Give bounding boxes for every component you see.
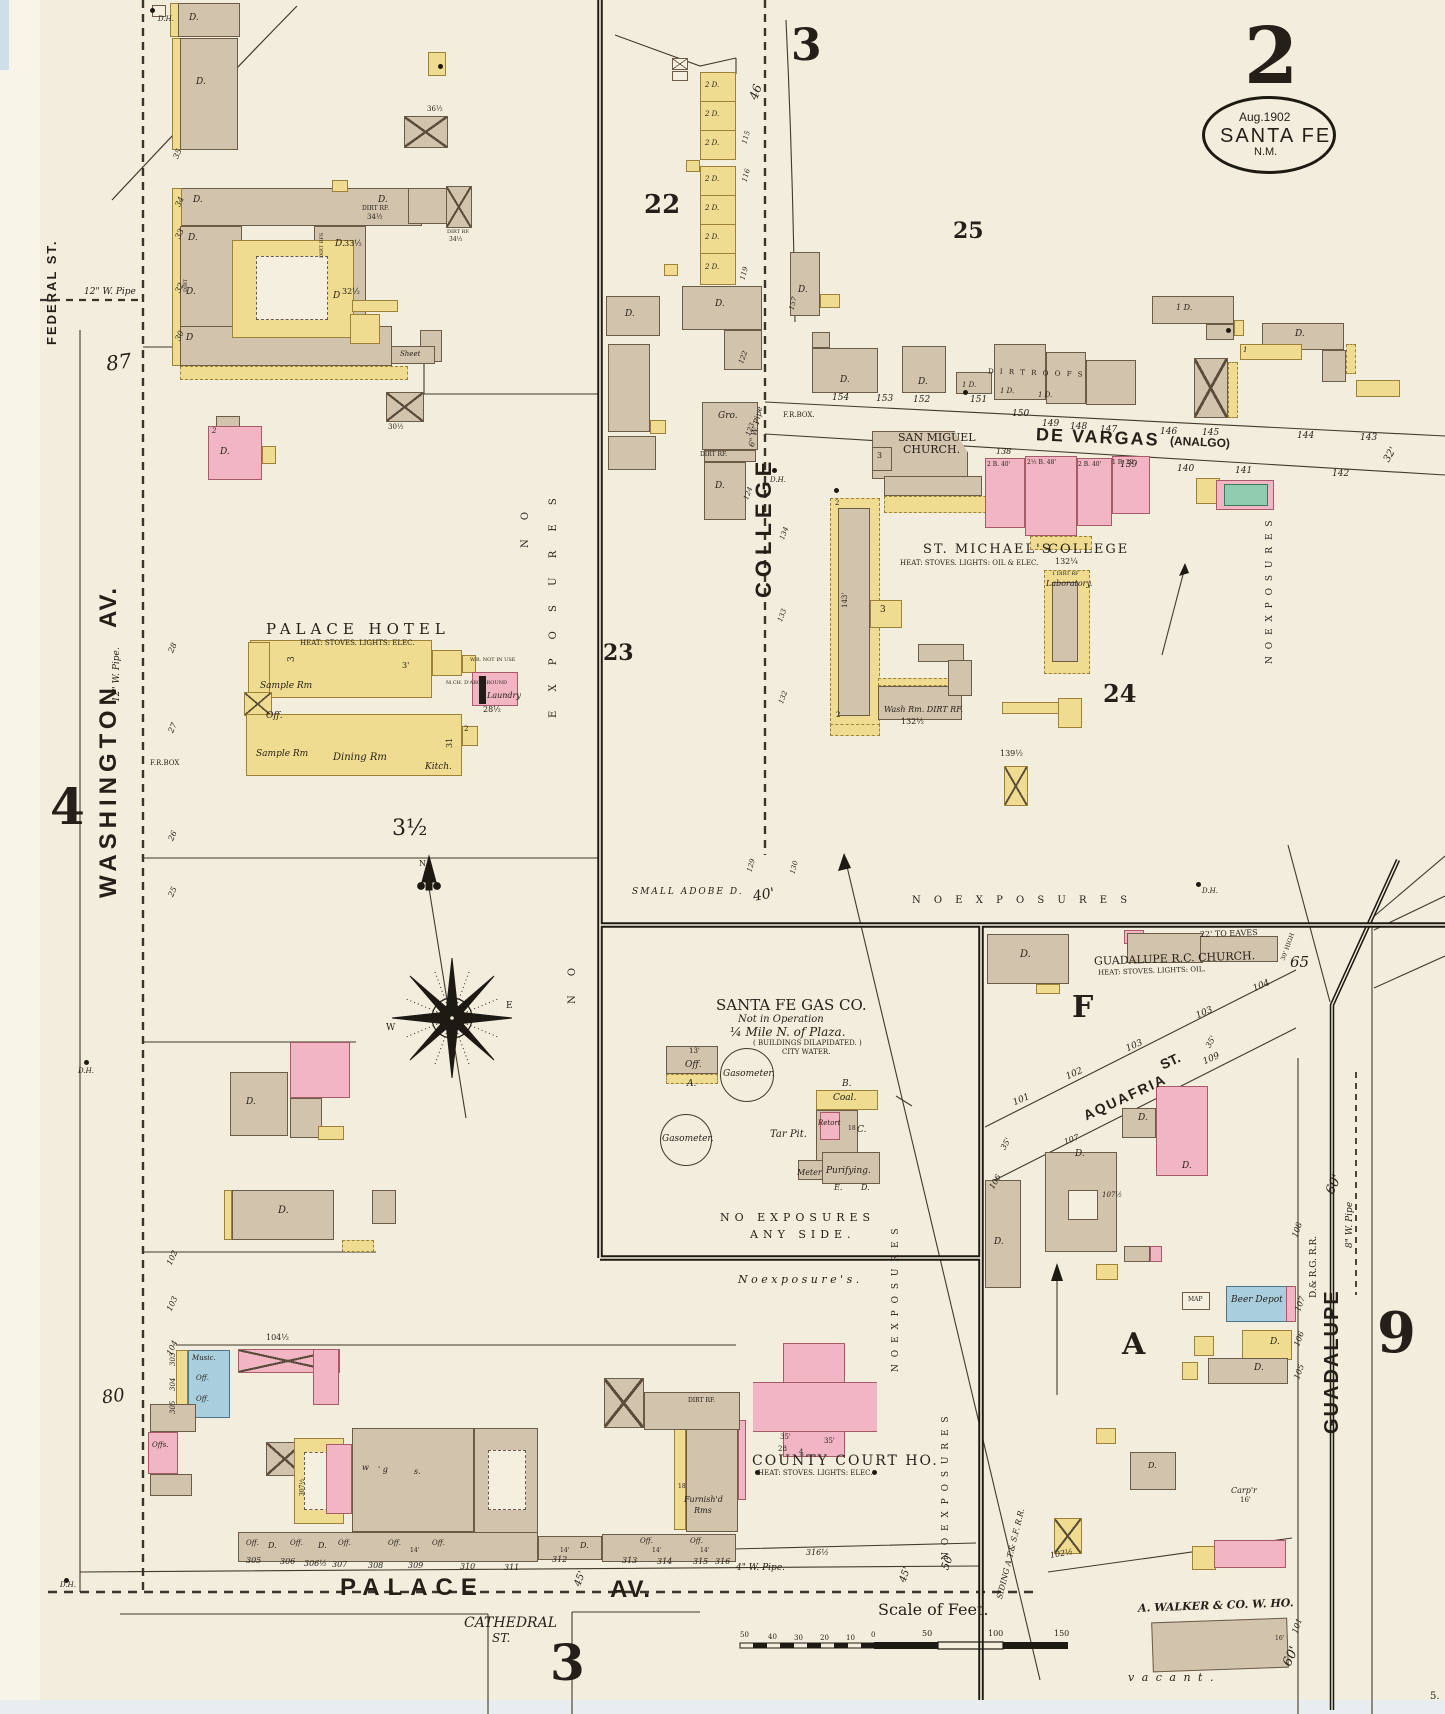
lot-number: 311 <box>504 1564 519 1572</box>
dimension: 35' <box>780 1434 791 1441</box>
scale-tick: 50 <box>740 1632 749 1639</box>
lot-number: 139 <box>1120 461 1137 470</box>
note-label: N O <box>521 504 531 548</box>
dwelling-label: D. <box>196 78 206 87</box>
room-label: Off. <box>196 1375 209 1382</box>
dwelling-label: 2 D. <box>705 176 719 183</box>
unit-label: 2½ B. 48' <box>1027 460 1056 466</box>
lot-number: 145 <box>1202 429 1219 438</box>
dimension: 143' <box>842 593 849 608</box>
dwelling-label: 1 D. <box>962 382 976 389</box>
building <box>1242 1330 1292 1360</box>
dimension: 14' <box>700 1548 709 1554</box>
building <box>672 71 688 81</box>
building <box>1356 380 1400 397</box>
room-label: Wash Rm. DIRT RF. <box>884 706 963 714</box>
post-dot <box>1226 328 1231 333</box>
lot-number: 151 <box>970 396 987 405</box>
railroad-label: D.& R.G. R.R. <box>1310 1236 1319 1298</box>
dwelling-label: D. <box>1075 1150 1085 1159</box>
building <box>150 1474 192 1496</box>
room-label: Dining Rm <box>333 753 387 763</box>
dimension: 16' <box>1240 1497 1251 1504</box>
dimension: 28 <box>778 1446 787 1453</box>
pipe-label: 8" W. Pipe <box>1346 1202 1355 1248</box>
dwelling-label: 1 D. <box>1038 392 1052 399</box>
dwelling-label: D. <box>840 376 850 385</box>
hydrant-label: D.H. <box>78 1068 94 1075</box>
roof-note: DIRT RF. <box>700 452 727 458</box>
block-number: 65 <box>1290 955 1309 970</box>
building <box>432 650 462 676</box>
building <box>180 38 238 150</box>
roof-note: DIRT RF. <box>688 1398 715 1404</box>
building <box>985 1180 1021 1288</box>
lot-number: 305 <box>246 1557 261 1565</box>
dimension: 30½ <box>388 424 404 431</box>
gasometer-label: Gasometer. <box>723 1070 775 1079</box>
building <box>650 420 666 434</box>
building <box>1194 1336 1214 1356</box>
store-label: Gro. <box>718 412 738 421</box>
scale-tick: 0 <box>871 1632 875 1639</box>
room-label: s. <box>414 1468 421 1476</box>
room-label: Off. <box>290 1540 303 1547</box>
room-label: Kitch. <box>425 763 452 772</box>
block-number: 22 <box>644 192 680 218</box>
building <box>313 1349 339 1405</box>
building <box>230 1072 288 1136</box>
street-label-palace-av: AV. <box>610 1578 652 1602</box>
adjacent-sheet-number: 3 <box>550 1638 585 1688</box>
dimension: 34½ <box>449 237 462 243</box>
lot-number: 140 <box>1177 465 1194 474</box>
dimension: 3 <box>880 606 886 615</box>
dimension: 34½ <box>367 214 383 221</box>
note-label: 1 DIRT RF <box>1052 572 1079 577</box>
building <box>386 392 424 422</box>
dwelling-label: D. <box>186 288 196 297</box>
post-dot <box>963 390 968 395</box>
dimension: 14' <box>560 1548 569 1554</box>
building <box>820 294 840 308</box>
dwelling-label: 2 D. <box>705 264 719 271</box>
lot-number: 142 <box>1332 470 1349 479</box>
lot-number: 307½ <box>300 1479 306 1496</box>
dwelling-label: D. <box>715 482 725 491</box>
dimension: 40' <box>752 886 776 904</box>
street-label-palace: PALACE <box>340 1576 485 1600</box>
firebox-label: F.R.BOX. <box>783 412 815 419</box>
courtyard <box>1068 1190 1098 1220</box>
note-label: N O <box>568 960 578 1004</box>
building <box>985 458 1025 528</box>
room-label: ' g <box>378 1466 388 1474</box>
dimension: 16' <box>1275 1636 1284 1642</box>
room-label: A. <box>687 1080 696 1089</box>
gasworks-water: CITY WATER. <box>782 1049 830 1056</box>
hydrant-dot <box>64 1578 69 1583</box>
dwelling-label: D. <box>378 196 388 205</box>
dwelling-label: 2 D. <box>705 205 719 212</box>
dimension: 132½ <box>901 718 924 726</box>
note-label: SMALL ADOBE D. <box>632 888 744 897</box>
building <box>224 1190 232 1240</box>
lot-number: 148 <box>1070 423 1087 432</box>
scale-tick: 40 <box>768 1634 777 1641</box>
dwelling-label: D. <box>994 1238 1004 1247</box>
lot-number: 314 <box>657 1558 672 1566</box>
lot-number: 147 <box>1100 426 1117 435</box>
lot-number: 107½ <box>1102 1192 1122 1199</box>
dwelling-label: 1 <box>1243 347 1247 354</box>
pipe-label: 4" W. Pipe. <box>736 1564 785 1573</box>
building <box>1130 1452 1176 1490</box>
church-name: CHURCH. <box>903 444 960 455</box>
hydrant-label: D.H. <box>60 1582 76 1589</box>
dwelling-label: D. <box>1182 1162 1192 1171</box>
lot-number: 303 <box>170 1353 177 1366</box>
lot-number: 149 <box>1042 420 1059 429</box>
college-name: ST. MICHAEL'S <box>923 543 1053 556</box>
dwelling-label: D. <box>715 300 725 309</box>
hydrant-dot <box>1196 882 1201 887</box>
room-label: w <box>362 1464 369 1472</box>
building <box>538 1536 602 1560</box>
post-dot <box>438 64 443 69</box>
lot-number: 316½ <box>806 1549 829 1557</box>
note-label: N O E X P O S U R E S <box>892 1226 901 1372</box>
block-number: 25 <box>953 220 984 242</box>
courtyard <box>488 1450 526 1510</box>
room-label: Music. <box>192 1355 216 1362</box>
lot-number: 304 <box>170 1378 177 1391</box>
building <box>674 1420 686 1530</box>
building <box>1025 456 1077 536</box>
lot-number: 306½ <box>304 1560 327 1568</box>
dwelling-label: 2 D. <box>705 140 719 147</box>
pipe-label: 12" W. Pipe <box>84 288 136 297</box>
adjacent-sheet-number: 4 <box>50 782 85 832</box>
compass-west-label: W <box>386 1024 395 1033</box>
stamp-date: Aug.1902 <box>1239 111 1290 123</box>
building <box>178 3 240 37</box>
building <box>738 1420 746 1500</box>
church-name: SAN MIGUEL <box>898 432 976 443</box>
street-label-cathedral-st: ST. <box>492 1632 510 1644</box>
compass-north-label: N <box>419 860 426 868</box>
dimension: 31 <box>446 738 454 748</box>
note-label: N O E X P O S U R E S <box>1266 518 1275 664</box>
dwelling-label: D. <box>1254 1364 1264 1373</box>
room-label: Tar Pit. <box>770 1130 807 1140</box>
building <box>318 1126 344 1140</box>
room-label: Laboratory. <box>1046 580 1092 588</box>
dwelling-label: D <box>333 292 340 301</box>
block-number: 80 <box>101 1386 126 1407</box>
building <box>604 1378 644 1428</box>
stable <box>1194 358 1228 418</box>
dimension: 3 <box>288 656 297 662</box>
building <box>1124 1246 1150 1262</box>
scale-title: Scale of Feet. <box>878 1602 988 1618</box>
dimension: 32½ <box>342 288 360 296</box>
building <box>180 366 408 380</box>
building <box>148 1432 178 1474</box>
hydrant-dot <box>772 468 777 473</box>
dwelling-label: D. <box>1270 1338 1280 1347</box>
building <box>1346 344 1356 374</box>
building <box>262 446 276 464</box>
note-label: v a c a n t . <box>1128 1672 1215 1683</box>
sanborn-map-sheet: Aug.1902 SANTA FE N.M. 2 3 4 9 3 5. 22 2… <box>0 0 1445 1714</box>
stamp-state: N.M. <box>1254 147 1277 158</box>
gasworks-name: SANTA FE GAS CO. <box>716 998 867 1013</box>
dimension: 36½ <box>427 106 443 113</box>
block-letter: A <box>1122 1330 1145 1360</box>
firebox-label: F.R.BOX <box>150 760 179 767</box>
room-label: Purifying. <box>826 1167 871 1176</box>
lot-number: 313 <box>622 1557 637 1565</box>
building <box>870 600 902 628</box>
building <box>1086 360 1136 405</box>
building <box>352 300 398 312</box>
building <box>1036 984 1060 994</box>
lot-number: 153 <box>876 395 893 404</box>
room-label: Furnish'd <box>684 1496 723 1504</box>
post-dot <box>834 488 839 493</box>
dwelling-label: D. <box>188 234 198 243</box>
room-label: Coal. <box>833 1094 856 1103</box>
scale-tick: 50 <box>922 1630 932 1638</box>
courthouse-wing <box>753 1382 877 1432</box>
gasworks-condition: ( BUILDINGS DILAPIDATED. ) <box>753 1040 862 1047</box>
block-letter: F <box>1072 993 1093 1023</box>
courthouse-info: HEAT: STOVES. LIGHTS: ELEC. <box>758 1470 873 1477</box>
hydrant-label: D.H. <box>158 16 174 23</box>
store-label: Carp'r <box>1231 1487 1257 1495</box>
building-label: Sheet <box>400 351 420 358</box>
dwelling-label: D. <box>335 240 345 249</box>
building <box>428 52 446 76</box>
building <box>686 1420 738 1532</box>
dwelling-label: D. <box>625 310 635 319</box>
gasometer-label: Gasometer. <box>662 1135 714 1144</box>
dwelling-label: D. <box>1138 1114 1148 1123</box>
college-info: HEAT: STOVES. LIGHTS: OIL & ELEC. <box>900 560 1038 567</box>
roof-note: DIRT RFS <box>320 233 325 258</box>
lot-number: 306 <box>280 1558 295 1566</box>
scale-tick: 100 <box>988 1630 1003 1638</box>
building <box>608 436 656 470</box>
date-stamp: Aug.1902 SANTA FE N.M. <box>1202 96 1336 174</box>
dimension: 2 <box>836 712 840 719</box>
block-number: 23 <box>603 642 634 664</box>
building <box>1208 1358 1288 1384</box>
courtyard <box>256 256 328 320</box>
room-label: Retort <box>818 1120 841 1127</box>
dimension: 18 <box>848 1126 856 1132</box>
room-label: Off. <box>388 1540 401 1547</box>
room-label: Meter <box>797 1169 822 1177</box>
hydrant-dot <box>84 1060 89 1065</box>
street-label-analgo: (ANALGO) <box>1170 435 1230 450</box>
building <box>838 508 870 716</box>
dimension: 139½ <box>1000 750 1023 758</box>
adjacent-sheet-number: 3 <box>791 24 822 68</box>
dwelling-label: D. <box>220 448 230 457</box>
building <box>608 344 650 432</box>
post-dot <box>755 1470 760 1475</box>
dwelling-label: D. <box>918 378 928 387</box>
building <box>446 186 472 228</box>
building <box>1322 350 1346 382</box>
building <box>664 264 678 276</box>
building <box>1228 362 1238 418</box>
dimension: 4 <box>799 1449 803 1456</box>
block-number: 24 <box>1103 682 1136 706</box>
room-label: Off. <box>685 1061 702 1070</box>
gasworks-status: Not in Operation <box>738 1015 824 1025</box>
dimension: 35' <box>824 1438 835 1445</box>
note-label: ANY SIDE. <box>750 1229 856 1240</box>
lot-number: 316 <box>715 1558 730 1566</box>
hotel-name: PALACE HOTEL <box>266 622 450 637</box>
lot-number: 143 <box>1360 434 1377 443</box>
unit-label: 2 B. 40' <box>1078 462 1101 468</box>
block-number: 87 <box>105 350 133 373</box>
building <box>1214 1540 1286 1568</box>
dimension: 13' <box>689 1048 700 1055</box>
college-name: COLLEGE <box>1048 543 1129 556</box>
note-label: NO EXPOSURES <box>720 1212 875 1223</box>
room-label: B. <box>842 1080 851 1089</box>
building <box>404 116 448 148</box>
walker-warehouse <box>1151 1618 1289 1673</box>
scale-tick: 150 <box>1054 1630 1069 1638</box>
note-label: E X P O S U R E S <box>549 490 559 718</box>
block-number: 3½ <box>392 818 427 840</box>
building <box>812 332 830 348</box>
building <box>704 462 746 520</box>
compass-east-label: E <box>506 1002 513 1011</box>
note-label: N o e x p o s u r e ' s . <box>738 1274 859 1285</box>
dwelling-label: D. <box>193 196 203 205</box>
dwelling-label: D. <box>1148 1462 1157 1470</box>
dimension: 14' <box>410 1548 419 1554</box>
post-dot <box>872 1470 877 1475</box>
dwelling-label: D. <box>318 1542 327 1550</box>
room-label: Offs. <box>152 1442 169 1449</box>
dwelling-label: 2 <box>212 428 216 435</box>
sheet-number: 2 <box>1244 18 1298 96</box>
room-label: Sample Rm <box>256 750 308 759</box>
scale-tick: 10 <box>846 1635 855 1642</box>
dimension: 33½ <box>344 240 362 248</box>
dwelling-label: 2 D. <box>705 234 719 241</box>
dwelling-label: D. <box>580 1542 589 1550</box>
building <box>948 660 972 696</box>
building <box>1182 1362 1198 1380</box>
dimension: 132¼ <box>1055 558 1078 566</box>
building <box>1192 1546 1216 1570</box>
dwelling-label: D. <box>798 286 808 295</box>
lot-number: 152 <box>913 396 930 405</box>
sticker-label: MAP <box>1188 1297 1203 1303</box>
lot-number: 315 <box>693 1558 708 1566</box>
dimension: 3' <box>402 662 409 670</box>
lot-number: 310 <box>460 1563 475 1571</box>
building <box>1002 702 1066 714</box>
dwelling-label: 2 D. <box>705 82 719 89</box>
street-label-washington-av: AV. <box>97 586 121 628</box>
lot-number: 308 <box>368 1562 383 1570</box>
carpenter-shop <box>1224 484 1268 506</box>
page-mark: 5. <box>1430 1692 1440 1702</box>
building <box>812 348 878 393</box>
street-label-washington: WASHINGTON <box>97 683 121 898</box>
hydrant-label: D.H. <box>770 477 786 484</box>
room-label: Off. <box>690 1538 703 1545</box>
note-label: W.R. NOT IN USE <box>470 658 515 663</box>
roof-note: DIRT RF. <box>362 206 389 212</box>
hotel-info: HEAT: STOVES. LIGHTS: ELEC. <box>300 640 415 647</box>
pipe-label: 12" W. Pipe. <box>113 647 122 702</box>
building <box>686 160 700 172</box>
building <box>1234 320 1244 336</box>
lot-number: 138 <box>996 448 1011 456</box>
lot-number: 307 <box>332 1561 347 1569</box>
lot-number: 154 <box>832 394 849 403</box>
dimension: 14' <box>652 1548 661 1554</box>
building <box>342 1240 374 1252</box>
room-label: Laundry <box>487 692 521 700</box>
building <box>830 724 880 736</box>
room-label: Sample Rm <box>260 682 312 691</box>
dwelling-label: D. <box>246 1098 256 1107</box>
room-label: E. <box>834 1184 842 1192</box>
building <box>884 476 982 496</box>
room-label: Off. <box>246 1540 259 1547</box>
adjacent-sheet-number: 9 <box>1377 1305 1416 1361</box>
building <box>1240 344 1302 360</box>
courthouse-name: COUNTY COURT HO. <box>752 1454 939 1468</box>
lot-number: 141 <box>1235 467 1252 476</box>
gasworks-location: ¼ Mile N. of Plaza. <box>730 1026 846 1038</box>
dwelling-label: 1 D. <box>1000 388 1014 395</box>
lot-number: 305 <box>170 1401 177 1414</box>
scale-tick: 20 <box>820 1635 829 1642</box>
dwelling-label: D. <box>1020 950 1031 960</box>
building <box>1150 1246 1162 1262</box>
building <box>326 1444 352 1514</box>
dwelling-label: D. <box>1295 330 1305 339</box>
building <box>290 1042 350 1098</box>
street-label-guadalupe: GUADALUPE <box>1322 1289 1342 1434</box>
note-label: M.CH. D'ABO GROUND <box>446 681 507 686</box>
dwelling-label: 2 D. <box>705 111 719 118</box>
room-label: Off. <box>196 1396 209 1403</box>
room-label: Rms <box>694 1507 712 1515</box>
building <box>1058 698 1082 728</box>
building <box>350 314 380 344</box>
room-label: Off. <box>640 1538 653 1545</box>
hydrant-label: D.H. <box>1202 888 1218 895</box>
note-label: N O E X P O S U R E S <box>942 1414 951 1560</box>
room-label: D. <box>861 1184 870 1192</box>
street-label-federal: FEDERAL ST. <box>45 239 58 345</box>
lot-number: 309 <box>408 1562 423 1570</box>
